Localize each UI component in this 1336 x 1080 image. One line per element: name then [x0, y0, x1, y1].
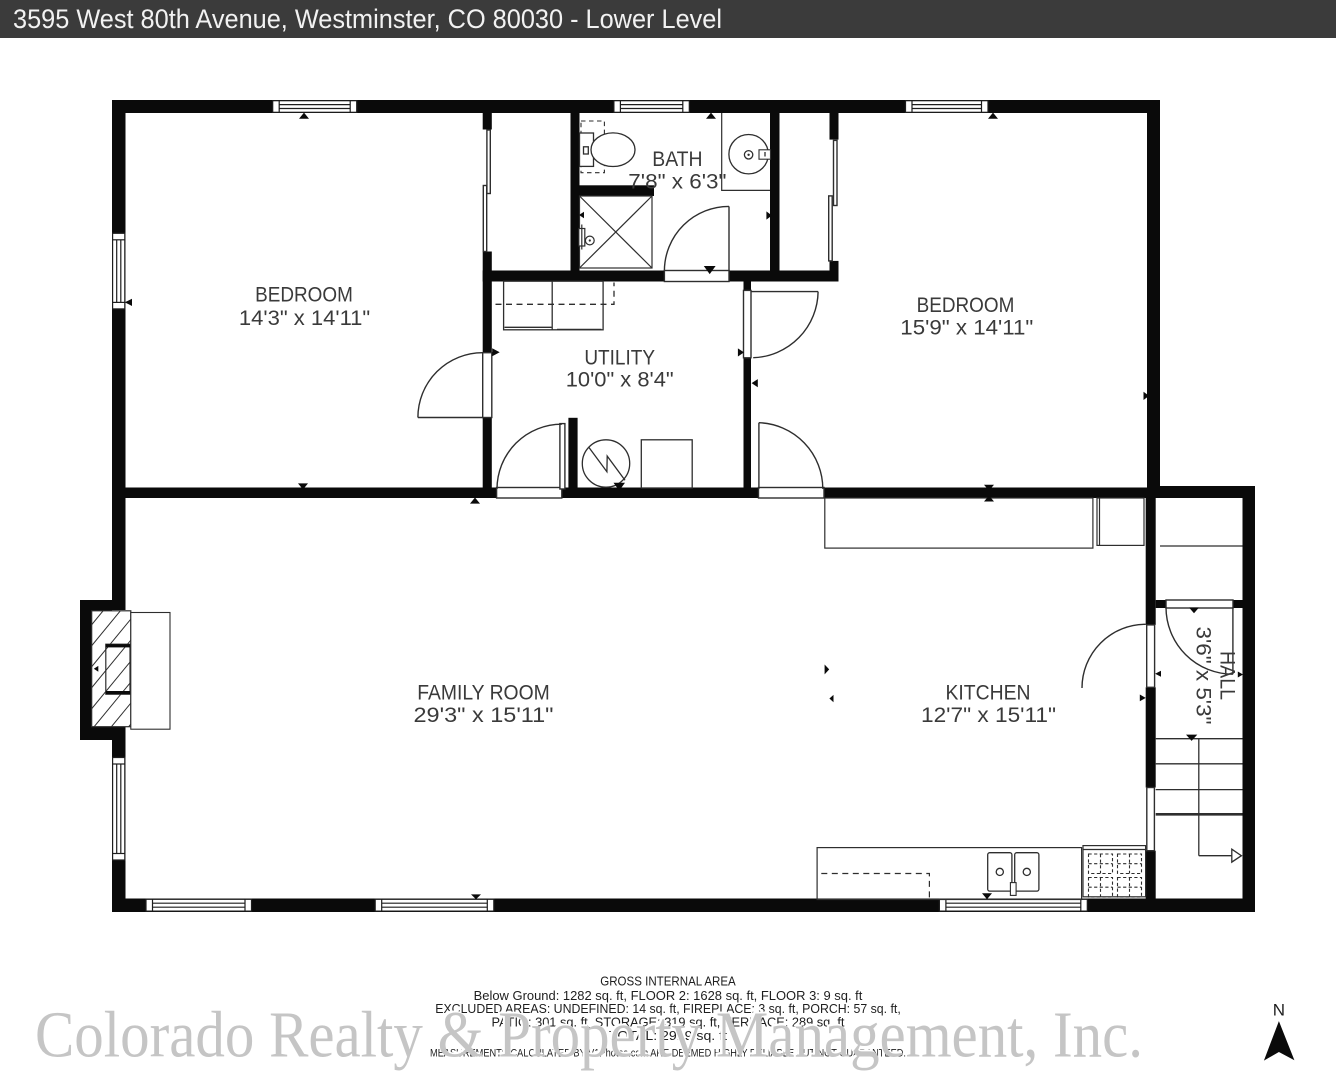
svg-text:15'9" x 14'11": 15'9" x 14'11"	[900, 316, 1033, 339]
svg-text:3595 West 80th Avenue, Westmin: 3595 West 80th Avenue, Westminster, CO 8…	[13, 4, 722, 34]
svg-text:FAMILY ROOM: FAMILY ROOM	[417, 682, 550, 705]
svg-text:14'3" x 14'11": 14'3" x 14'11"	[239, 307, 370, 330]
svg-text:GROSS INTERNAL AREA: GROSS INTERNAL AREA	[600, 975, 736, 989]
svg-text:HALL: HALL	[1216, 651, 1239, 700]
svg-text:3'6" x 5'3": 3'6" x 5'3"	[1192, 627, 1215, 725]
svg-text:N: N	[1273, 1001, 1285, 1020]
svg-text:BEDROOM: BEDROOM	[917, 294, 1015, 317]
svg-text:BEDROOM: BEDROOM	[255, 283, 353, 306]
svg-text:10'0" x 8'4": 10'0" x 8'4"	[566, 369, 674, 392]
svg-text:BATH: BATH	[652, 148, 702, 171]
svg-text:UTILITY: UTILITY	[584, 346, 655, 369]
svg-text:12'7" x 15'11": 12'7" x 15'11"	[921, 704, 1056, 727]
svg-text:29'3" x 15'11": 29'3" x 15'11"	[414, 704, 554, 727]
svg-text:7'8" x 6'3": 7'8" x 6'3"	[628, 170, 726, 193]
svg-text:KITCHEN: KITCHEN	[946, 682, 1031, 705]
svg-text:Colorado Realty & Property Man: Colorado Realty & Property Management, I…	[35, 999, 1143, 1072]
